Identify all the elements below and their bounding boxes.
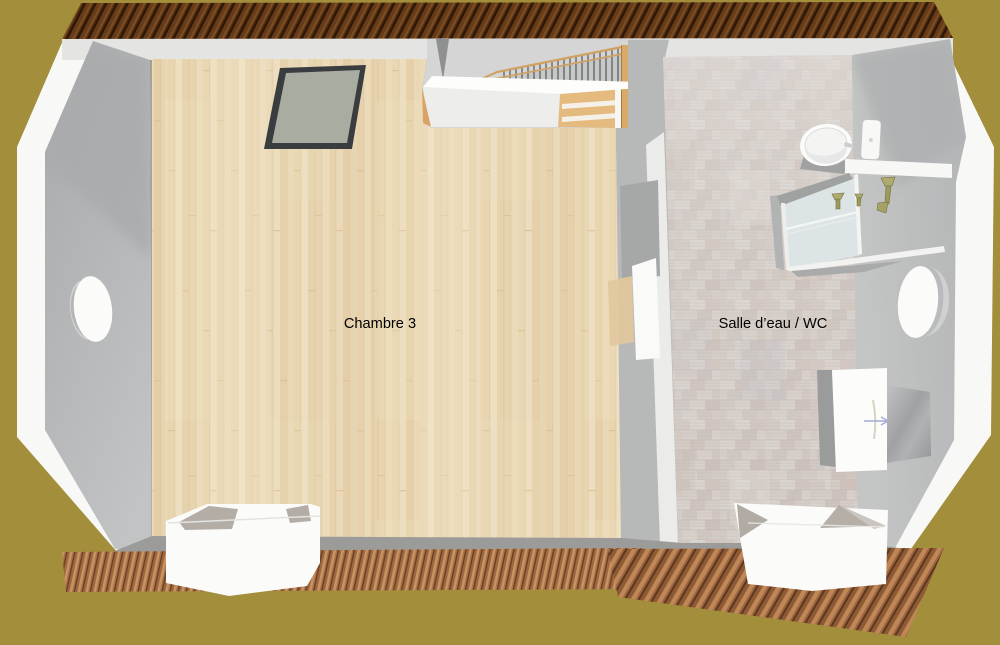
svg-text:Salle d’eau / WC: Salle d’eau / WC bbox=[719, 316, 828, 332]
svg-text:Chambre 3: Chambre 3 bbox=[344, 316, 416, 332]
